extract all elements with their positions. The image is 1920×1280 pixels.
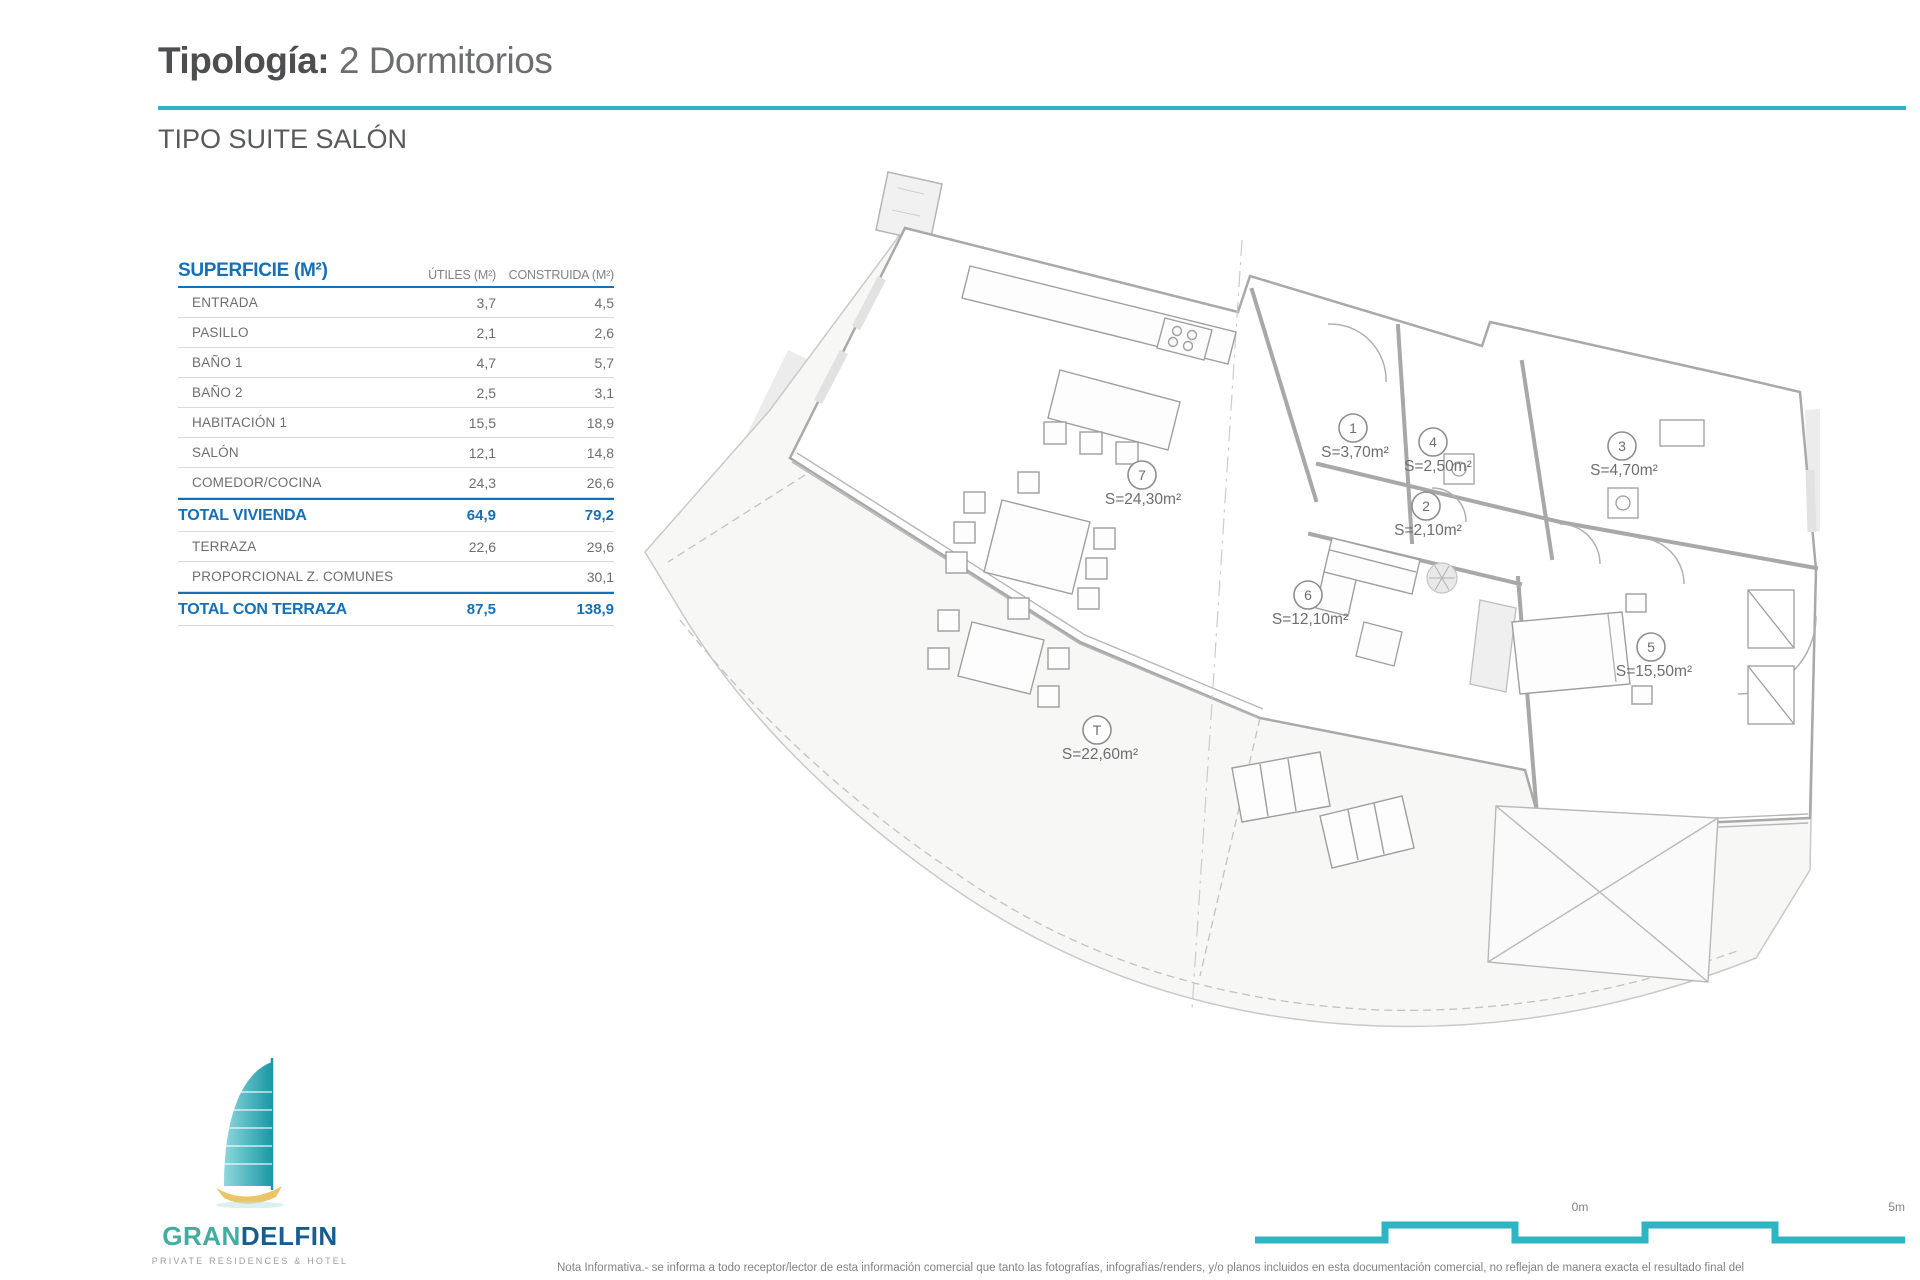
row-label: ENTRADA <box>178 295 400 310</box>
plant-icon <box>1427 563 1457 593</box>
col-header-construida: CONSTRUIDA (M²) <box>496 268 614 282</box>
col-header-utiles: ÚTILES (M²) <box>400 268 496 282</box>
surface-table: SUPERFICIE (M²) ÚTILES (M²) CONSTRUIDA (… <box>178 250 614 626</box>
page-title-bold: Tipología: <box>158 40 329 81</box>
table-row: HABITACIÓN 115,518,9 <box>178 408 614 438</box>
row-utiles: 22,6 <box>400 539 496 555</box>
row-label: TOTAL CON TERRAZA <box>178 601 400 619</box>
surface-table-header: SUPERFICIE (M²) ÚTILES (M²) CONSTRUIDA (… <box>178 250 614 288</box>
table-row: TERRAZA22,629,6 <box>178 532 614 562</box>
page-title: Tipología: 2 Dormitorios <box>158 40 1858 82</box>
brand-name: GRANDELFIN <box>140 1221 360 1252</box>
row-label: PROPORCIONAL Z. COMUNES <box>178 569 400 584</box>
row-label: BAÑO 2 <box>178 385 400 400</box>
row-utiles: 15,5 <box>400 415 496 431</box>
table-row: COMEDOR/COCINA24,326,6 <box>178 468 614 498</box>
row-construida: 3,1 <box>496 385 614 401</box>
scale-bar-graphic <box>1255 1216 1905 1248</box>
svg-text:3: 3 <box>1618 438 1626 454</box>
row-utiles: 12,1 <box>400 445 496 461</box>
row-label: SALÓN <box>178 445 400 460</box>
svg-text:S=3,70m²: S=3,70m² <box>1321 444 1389 461</box>
page-header: Tipología: 2 Dormitorios <box>158 40 1858 82</box>
row-construida: 30,1 <box>496 569 614 585</box>
row-label: TOTAL VIVIENDA <box>178 507 400 525</box>
svg-text:S=12,10m²: S=12,10m² <box>1272 611 1348 628</box>
table-row: SALÓN12,114,8 <box>178 438 614 468</box>
scale-label-5m: 5m <box>1888 1200 1905 1214</box>
scale-label-0m: 0m <box>1572 1200 1589 1214</box>
svg-text:S=24,30m²: S=24,30m² <box>1105 491 1181 508</box>
table-row: PASILLO2,12,6 <box>178 318 614 348</box>
reserved-area-x <box>1488 806 1718 982</box>
surface-table-title: SUPERFICIE (M²) <box>178 260 400 282</box>
svg-text:5: 5 <box>1647 639 1655 655</box>
title-divider <box>158 106 1906 110</box>
row-label: PASILLO <box>178 325 400 340</box>
row-construida: 4,5 <box>496 295 614 311</box>
brand-tagline: PRIVATE RESIDENCES & HOTEL <box>140 1256 360 1266</box>
svg-text:4: 4 <box>1429 434 1437 450</box>
table-row-total-terraza: TOTAL CON TERRAZA87,5138,9 <box>178 592 614 626</box>
legal-footnote: Nota Informativa.- se informa a todo rec… <box>557 1262 1920 1274</box>
page-subtitle: TIPO SUITE SALÓN <box>158 124 407 155</box>
row-label: COMEDOR/COCINA <box>178 475 400 490</box>
svg-text:2: 2 <box>1422 498 1430 514</box>
svg-text:S=2,50m²: S=2,50m² <box>1404 458 1472 475</box>
brand-name-gran: GRAN <box>162 1221 241 1251</box>
scale-bar: 0m 5m <box>1255 1200 1905 1256</box>
row-utiles: 87,5 <box>400 601 496 618</box>
svg-text:S=2,10m²: S=2,10m² <box>1394 522 1462 539</box>
row-construida: 138,9 <box>496 601 614 618</box>
table-row: BAÑO 22,53,1 <box>178 378 614 408</box>
svg-text:S=15,50m²: S=15,50m² <box>1616 663 1692 680</box>
row-construida: 14,8 <box>496 445 614 461</box>
row-construida: 18,9 <box>496 415 614 431</box>
row-label: TERRAZA <box>178 539 400 554</box>
brand-name-delfin: DELFIN <box>241 1221 338 1251</box>
row-construida: 5,7 <box>496 355 614 371</box>
table-row: PROPORCIONAL Z. COMUNES30,1 <box>178 562 614 592</box>
scale-bar-labels: 0m 5m <box>1255 1200 1905 1216</box>
svg-text:S=4,70m²: S=4,70m² <box>1590 462 1658 479</box>
svg-text:1: 1 <box>1349 420 1357 436</box>
table-row-total-vivienda: TOTAL VIVIENDA64,979,2 <box>178 498 614 532</box>
row-utiles: 24,3 <box>400 475 496 491</box>
table-row: ENTRADA3,74,5 <box>178 288 614 318</box>
svg-text:6: 6 <box>1304 587 1312 603</box>
page-title-light: 2 Dormitorios <box>329 40 552 81</box>
row-construida: 29,6 <box>496 539 614 555</box>
brand-logo: GRANDELFIN PRIVATE RESIDENCES & HOTEL <box>140 1058 360 1266</box>
table-row: BAÑO 14,75,7 <box>178 348 614 378</box>
svg-text:7: 7 <box>1138 467 1146 483</box>
row-utiles: 4,7 <box>400 355 496 371</box>
row-utiles: 64,9 <box>400 507 496 524</box>
floor-plan: 7 S=24,30m² 1 S=3,70m² 4 S=2,50m² 3 S=4,… <box>620 170 1820 1050</box>
row-utiles: 2,5 <box>400 385 496 401</box>
row-label: HABITACIÓN 1 <box>178 415 400 430</box>
svg-text:S=22,60m²: S=22,60m² <box>1062 746 1138 763</box>
row-utiles: 3,7 <box>400 295 496 311</box>
row-label: BAÑO 1 <box>178 355 400 370</box>
row-construida: 26,6 <box>496 475 614 491</box>
svg-text:T: T <box>1093 722 1102 738</box>
row-utiles: 2,1 <box>400 325 496 341</box>
row-construida: 79,2 <box>496 507 614 524</box>
row-construida: 2,6 <box>496 325 614 341</box>
sail-tower-icon <box>210 1058 290 1208</box>
